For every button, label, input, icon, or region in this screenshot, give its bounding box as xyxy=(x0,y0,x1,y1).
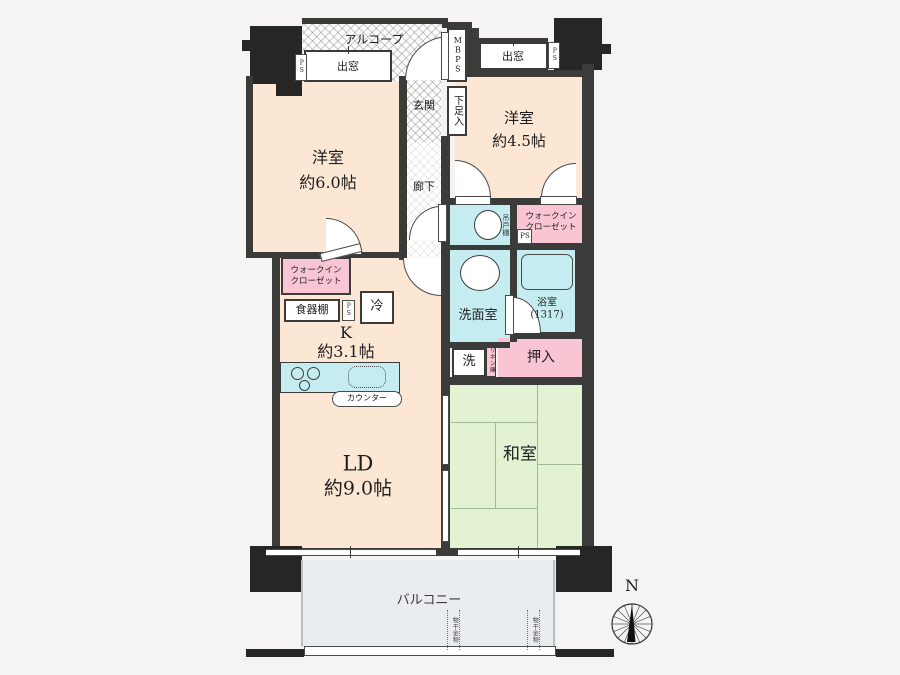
stove-burner xyxy=(299,380,310,391)
wall xyxy=(450,245,510,250)
kitchen-sink xyxy=(348,366,386,388)
kitchen-size: 約3.1帖 xyxy=(317,343,374,361)
washroom-door-leaf xyxy=(438,204,447,242)
stove-burner xyxy=(307,367,320,380)
corridor-label: 廊下 xyxy=(413,181,435,193)
ps-kitchen-label: PS xyxy=(345,303,352,318)
alcove-label: アルコープ xyxy=(345,33,404,46)
sliding-door xyxy=(442,470,449,542)
wall-corridor-left xyxy=(399,76,407,260)
western-room-45-size: 約4.5帖 xyxy=(492,133,546,150)
balcony-side-wall xyxy=(301,560,303,646)
linen-label: リネン庫 xyxy=(488,347,495,373)
bay-window-left-label: 出窓 xyxy=(337,61,359,73)
column-nub xyxy=(602,44,611,54)
wall-right-outer xyxy=(582,64,594,556)
wash-basin xyxy=(460,255,500,291)
ld-label: LD xyxy=(343,452,374,475)
fridge-label: 冷 xyxy=(370,300,383,314)
bay-window-right-label: 出窓 xyxy=(502,51,524,63)
mbps-label: MBPS xyxy=(453,36,462,74)
sliding-door xyxy=(442,395,449,465)
corridor-area xyxy=(407,142,441,260)
window-ld xyxy=(266,549,436,556)
stove-burner xyxy=(291,367,304,380)
window-japanese xyxy=(458,549,580,556)
wall xyxy=(441,377,594,385)
wic-right-label-2: クローゼット xyxy=(525,223,576,232)
bath-door-leaf xyxy=(505,295,514,335)
washroom-label: 洗面室 xyxy=(458,309,497,323)
wall xyxy=(517,243,582,250)
balcony-label: バルコニー xyxy=(397,594,462,608)
floor-plan: MBPS 下足入 出窓 出窓 PS PS 食器棚 PS 冷 カウンター 吊戸棚 … xyxy=(0,0,900,675)
north-label: N xyxy=(625,577,639,595)
balcony-rail-left xyxy=(246,649,304,657)
shoe-cabinet-label: 下足入 xyxy=(452,95,463,127)
window-tick xyxy=(350,546,351,558)
western45-door-leaf xyxy=(455,196,491,205)
washer-label: 洗 xyxy=(462,355,475,369)
balcony-side-wall xyxy=(553,560,555,646)
tatami-line xyxy=(451,422,537,423)
compass-icon xyxy=(604,596,660,652)
tatami-line xyxy=(495,422,496,508)
bathtub xyxy=(521,254,573,290)
wic-right-label-1: ウォークイン xyxy=(525,212,576,221)
column-ext xyxy=(276,84,302,96)
ps-left-label: PS xyxy=(298,60,305,75)
bathroom-label: 浴室 xyxy=(537,298,557,309)
western-room-6-label: 洋室 xyxy=(312,149,344,167)
tatami-line xyxy=(537,385,538,548)
wall xyxy=(465,70,594,77)
wic-left-label-1: ウォークイン xyxy=(290,266,341,275)
bathroom-size: (1317) xyxy=(530,310,563,321)
entrance-label: 玄関 xyxy=(413,100,435,112)
counter-label: カウンター xyxy=(347,395,387,404)
toilet xyxy=(474,210,502,240)
wall xyxy=(302,18,448,24)
column-nub xyxy=(242,40,251,51)
dish-cupboard-label: 食器棚 xyxy=(296,304,329,316)
window-tick xyxy=(348,46,349,54)
kitchen-label: K xyxy=(340,324,352,342)
ps-wic-label: PS xyxy=(520,233,530,241)
wic-right-door-leaf xyxy=(540,196,577,205)
western-room-45-label: 洋室 xyxy=(504,110,534,127)
hanging-cupboard-label: 吊戸棚 xyxy=(501,214,509,237)
balcony-rail xyxy=(304,646,556,656)
column-top-right xyxy=(554,18,602,70)
window-tick xyxy=(518,546,519,558)
wall xyxy=(517,332,582,339)
japanese-room-label: 和室 xyxy=(503,446,537,465)
wall-left-outer-lower xyxy=(272,258,280,548)
tatami-line xyxy=(537,464,582,465)
oshiire-label: 押入 xyxy=(527,350,555,365)
laundry-hook-label: 物干金物 xyxy=(451,617,458,643)
ld-size: 約9.0帖 xyxy=(324,479,392,500)
window-tick xyxy=(513,38,514,46)
laundry-hook-label: 物干金物 xyxy=(531,617,538,643)
wall xyxy=(575,250,582,338)
western-room-6-size: 約6.0帖 xyxy=(299,174,356,192)
wall-left-outer-upper xyxy=(246,76,253,258)
japanese-room xyxy=(450,385,582,548)
wall xyxy=(510,205,517,250)
tatami-line xyxy=(451,508,537,509)
entrance-door-leaf xyxy=(441,32,449,80)
ps-right-label: PS xyxy=(551,48,558,63)
wic-left-label-2: クローゼット xyxy=(290,277,341,286)
